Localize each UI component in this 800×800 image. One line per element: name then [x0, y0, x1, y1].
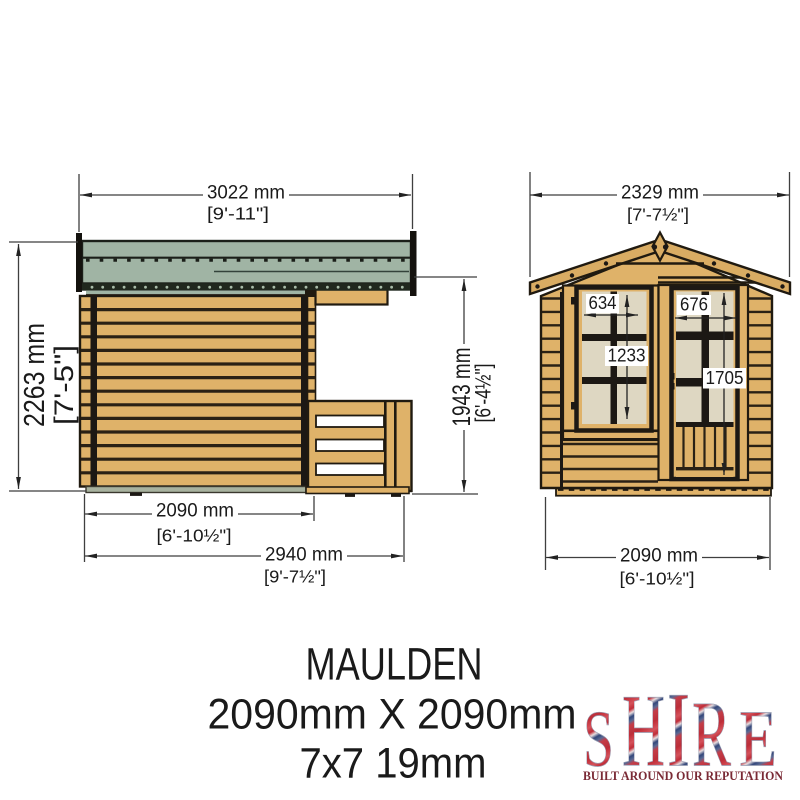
svg-text:2940 mm: 2940 mm [265, 544, 343, 566]
svg-text:2090 mm: 2090 mm [620, 545, 698, 567]
svg-text:2329 mm: 2329 mm [621, 182, 699, 204]
svg-text:[6'-4½"]: [6'-4½"] [471, 364, 496, 423]
svg-text:676: 676 [680, 295, 708, 315]
svg-text:3022 mm: 3022 mm [207, 182, 285, 204]
svg-text:[9'-7½"]: [9'-7½"] [264, 567, 326, 587]
svg-text:2090 mm: 2090 mm [156, 500, 234, 522]
svg-text:634: 634 [589, 293, 617, 313]
svg-text:2263 mm: 2263 mm [19, 323, 51, 427]
svg-text:[6'-10½"]: [6'-10½"] [620, 569, 695, 589]
svg-text:1233: 1233 [608, 346, 646, 366]
svg-text:MAULDEN: MAULDEN [306, 639, 483, 690]
svg-text:[7'-5"]: [7'-5"] [49, 345, 79, 425]
svg-text:2090mm X 2090mm: 2090mm X 2090mm [208, 691, 577, 739]
svg-text:[7'-7½"]: [7'-7½"] [627, 205, 689, 225]
svg-text:BUILT AROUND OUR REPUTATION: BUILT AROUND OUR REPUTATION [583, 768, 784, 783]
svg-text:1705: 1705 [706, 368, 744, 388]
svg-text:[6'-10½"]: [6'-10½"] [157, 526, 232, 546]
svg-text:[9'-11"]: [9'-11"] [207, 204, 269, 224]
svg-text:7x7 19mm: 7x7 19mm [300, 740, 487, 788]
